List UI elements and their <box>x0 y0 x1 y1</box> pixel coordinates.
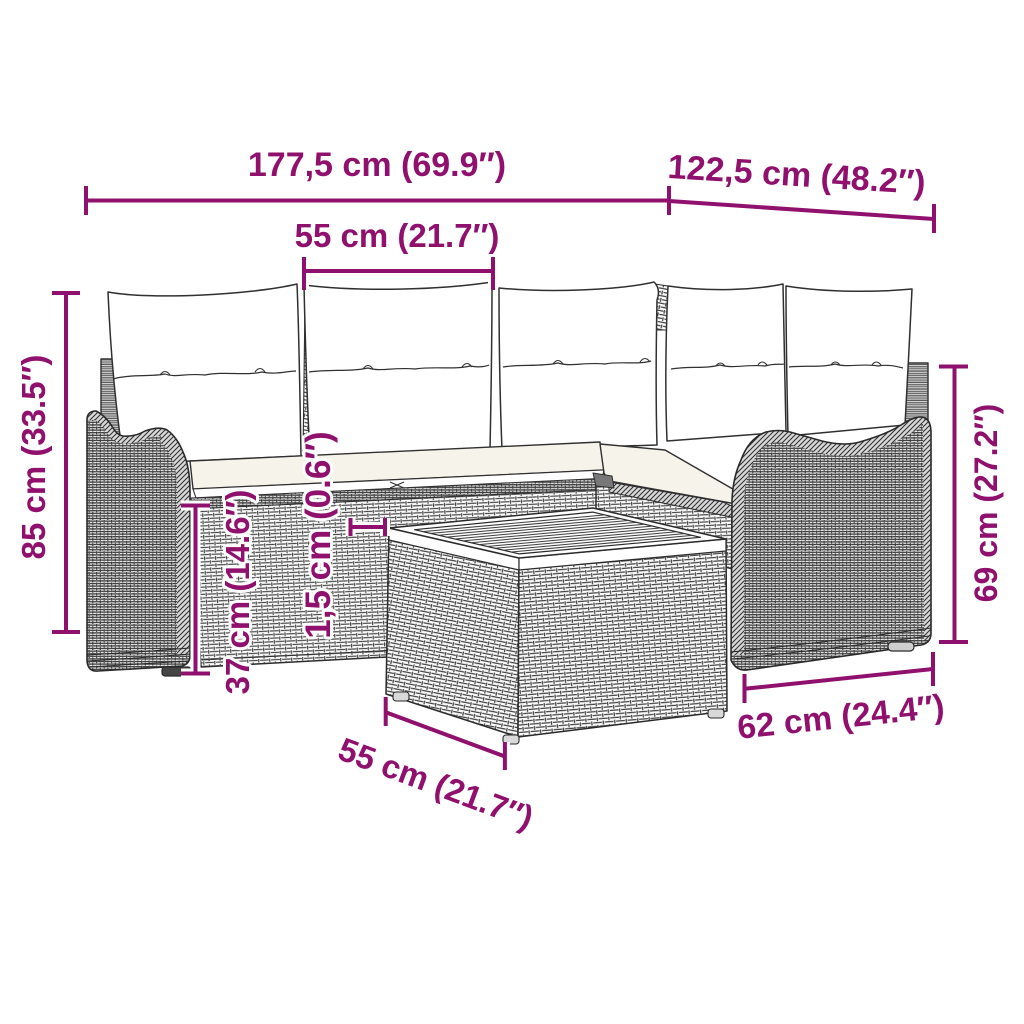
svg-text:69 cm (27.2″): 69 cm (27.2″) <box>968 404 1004 603</box>
svg-text:55 cm (21.7″): 55 cm (21.7″) <box>295 217 500 254</box>
svg-text:37 cm (14.6″): 37 cm (14.6″) <box>219 490 256 695</box>
svg-text:177,5 cm (69.9″): 177,5 cm (69.9″) <box>248 146 506 184</box>
svg-text:85 cm (33.5″): 85 cm (33.5″) <box>15 355 52 560</box>
svg-text:1,5 cm (0.6″): 1,5 cm (0.6″) <box>299 431 338 638</box>
